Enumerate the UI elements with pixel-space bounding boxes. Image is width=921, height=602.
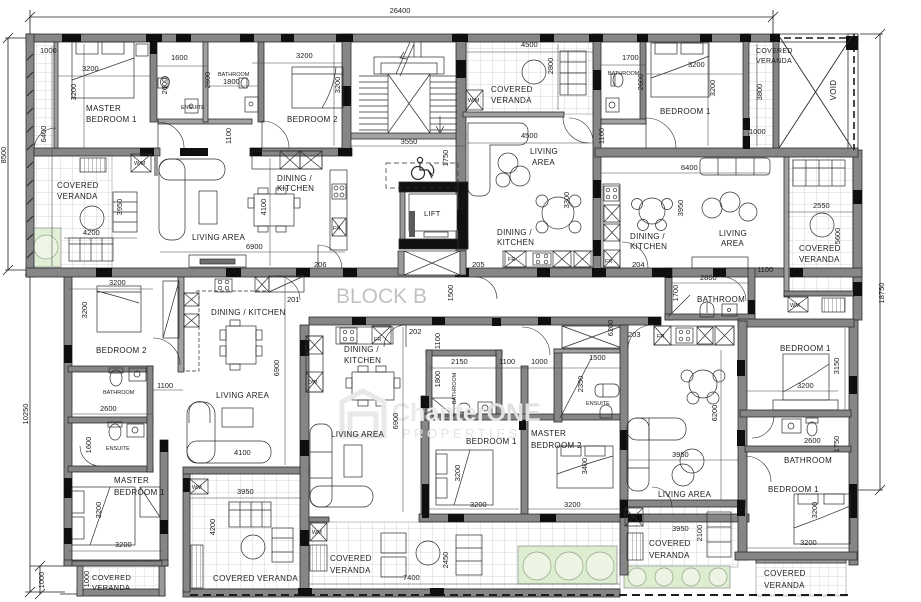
- svg-text:VERANDA: VERANDA: [649, 551, 690, 560]
- svg-text:2600: 2600: [100, 404, 117, 413]
- svg-text:3200: 3200: [333, 77, 342, 94]
- svg-text:MASTER: MASTER: [86, 104, 121, 113]
- svg-text:1800: 1800: [223, 77, 240, 86]
- svg-text:4100: 4100: [234, 448, 251, 457]
- svg-text:VERANDA: VERANDA: [756, 58, 792, 65]
- svg-text:LIFT: LIFT: [424, 209, 441, 218]
- svg-text:BEDROOM 1: BEDROOM 1: [660, 107, 711, 116]
- svg-text:1000: 1000: [82, 571, 91, 588]
- svg-text:10250: 10250: [21, 404, 30, 425]
- svg-text:3200: 3200: [109, 278, 126, 287]
- svg-text:W/M: W/M: [468, 98, 480, 104]
- svg-text:3150: 3150: [832, 358, 841, 375]
- svg-text:2800: 2800: [700, 273, 717, 282]
- svg-text:6900: 6900: [246, 242, 263, 251]
- svg-text:BATHROOM: BATHROOM: [103, 390, 135, 396]
- svg-text:VERANDA: VERANDA: [330, 566, 371, 575]
- svg-text:3550: 3550: [401, 137, 418, 146]
- svg-text:BEDROOM 2: BEDROOM 2: [287, 115, 338, 124]
- svg-text:ENSUITE: ENSUITE: [586, 401, 610, 407]
- svg-text:1000: 1000: [531, 357, 548, 366]
- svg-text:204: 204: [632, 260, 645, 269]
- svg-text:4100: 4100: [259, 199, 268, 216]
- svg-text:1600: 1600: [84, 437, 93, 454]
- svg-text:1100: 1100: [433, 333, 442, 349]
- svg-text:DINING /: DINING /: [630, 232, 665, 241]
- svg-text:1000: 1000: [37, 572, 46, 589]
- svg-text:VERANDA: VERANDA: [491, 96, 532, 105]
- svg-text:VERANDA: VERANDA: [57, 192, 98, 201]
- svg-text:2600: 2600: [804, 436, 821, 445]
- svg-text:DINING /: DINING /: [344, 345, 379, 354]
- svg-text:1100: 1100: [499, 357, 515, 366]
- svg-text:6400: 6400: [39, 126, 48, 143]
- svg-text:3300: 3300: [562, 192, 571, 209]
- svg-text:3200: 3200: [810, 502, 819, 519]
- svg-text:KITCHEN: KITCHEN: [497, 238, 534, 247]
- svg-text:1700: 1700: [671, 285, 680, 302]
- svg-text:3200: 3200: [80, 302, 89, 319]
- svg-text:COVERED: COVERED: [57, 181, 99, 190]
- svg-text:3200: 3200: [708, 80, 717, 97]
- svg-text:WM: WM: [790, 303, 800, 309]
- svg-text:FR: FR: [333, 226, 340, 232]
- svg-text:3950: 3950: [672, 450, 689, 459]
- svg-text:ENSUITE: ENSUITE: [106, 446, 130, 452]
- svg-text:LIVING AREA: LIVING AREA: [331, 430, 384, 439]
- svg-text:ENSUITE: ENSUITE: [181, 105, 205, 111]
- svg-text:BEDROOM 1: BEDROOM 1: [780, 344, 831, 353]
- svg-text:KITCHEN: KITCHEN: [277, 184, 314, 193]
- svg-text:1700: 1700: [622, 53, 639, 62]
- svg-text:1500: 1500: [589, 353, 606, 362]
- svg-text:3200: 3200: [564, 500, 581, 509]
- svg-text:3200: 3200: [69, 84, 78, 101]
- svg-text:LIVING: LIVING: [530, 147, 558, 156]
- svg-text:COVERED: COVERED: [799, 244, 841, 253]
- svg-text:6400: 6400: [681, 163, 698, 172]
- svg-text:BEDROOM 1: BEDROOM 1: [114, 488, 165, 497]
- svg-text:1100: 1100: [597, 128, 606, 144]
- svg-text:1000: 1000: [40, 46, 57, 55]
- svg-text:2600: 2600: [636, 74, 645, 91]
- svg-text:3200: 3200: [688, 60, 705, 69]
- svg-text:1100: 1100: [157, 381, 173, 390]
- svg-text:BEDROOM 1: BEDROOM 1: [86, 115, 137, 124]
- svg-text:VERANDA: VERANDA: [92, 583, 130, 592]
- svg-text:FR: FR: [508, 257, 515, 263]
- svg-text:1750: 1750: [441, 150, 450, 167]
- svg-text:3200: 3200: [94, 502, 103, 519]
- svg-text:W/M: W/M: [134, 161, 146, 167]
- svg-text:VERANDA: VERANDA: [799, 255, 840, 264]
- svg-text:2350: 2350: [576, 376, 585, 393]
- svg-text:206: 206: [314, 260, 327, 269]
- svg-text:203: 203: [628, 330, 641, 339]
- svg-text:1500: 1500: [446, 285, 455, 302]
- svg-text:BEDROOM 2: BEDROOM 2: [531, 441, 582, 450]
- svg-text:COVERED: COVERED: [649, 539, 691, 548]
- svg-text:1750: 1750: [832, 436, 841, 453]
- svg-text:1800: 1800: [433, 371, 442, 388]
- svg-text:3950: 3950: [115, 199, 124, 216]
- svg-text:3950: 3950: [676, 200, 685, 217]
- svg-text:4500: 4500: [521, 40, 538, 49]
- svg-text:6900: 6900: [272, 360, 281, 377]
- svg-text:3200: 3200: [115, 540, 132, 549]
- svg-text:3200: 3200: [800, 538, 817, 547]
- svg-text:WM: WM: [192, 485, 202, 491]
- svg-text:1600: 1600: [171, 53, 188, 62]
- svg-text:AREA: AREA: [721, 239, 744, 248]
- svg-text:18750: 18750: [877, 283, 886, 304]
- svg-text:AREA: AREA: [532, 158, 555, 167]
- svg-text:4200: 4200: [83, 228, 100, 237]
- svg-text:KITCHEN: KITCHEN: [344, 356, 381, 365]
- svg-text:2800: 2800: [546, 58, 555, 75]
- svg-text:BATHROOM: BATHROOM: [784, 456, 832, 465]
- svg-text:2100: 2100: [695, 525, 704, 542]
- svg-text:8500: 8500: [0, 147, 8, 164]
- svg-text:DINING / KITCHEN: DINING / KITCHEN: [211, 308, 286, 317]
- svg-text:BEDROOM 1: BEDROOM 1: [768, 485, 819, 494]
- svg-text:WM: WM: [627, 515, 637, 521]
- svg-text:3200: 3200: [296, 51, 313, 60]
- svg-text:3950: 3950: [237, 487, 254, 496]
- svg-text:ChanterONE: ChanterONE: [392, 399, 541, 427]
- svg-text:7400: 7400: [403, 573, 420, 582]
- svg-text:3200: 3200: [797, 381, 814, 390]
- svg-text:COVERED VERANDA: COVERED VERANDA: [213, 574, 298, 583]
- svg-text:3200: 3200: [470, 500, 487, 509]
- svg-text:1000: 1000: [749, 127, 766, 136]
- svg-text:3200: 3200: [82, 64, 99, 73]
- svg-text:DINING /: DINING /: [277, 174, 312, 183]
- svg-text:KITCHEN: KITCHEN: [630, 242, 667, 251]
- svg-text:202: 202: [409, 327, 422, 336]
- svg-text:3400: 3400: [580, 458, 589, 475]
- svg-text:BATHROOM: BATHROOM: [452, 372, 458, 404]
- svg-text:1100: 1100: [224, 128, 233, 144]
- svg-text:FR: FR: [605, 259, 612, 265]
- svg-text:BATHROOM: BATHROOM: [697, 295, 745, 304]
- svg-text:FR: FR: [374, 337, 381, 343]
- svg-text:LIVING AREA: LIVING AREA: [658, 490, 711, 499]
- svg-text:2450: 2450: [441, 552, 450, 569]
- svg-text:5600: 5600: [833, 228, 842, 245]
- svg-text:4200: 4200: [208, 519, 217, 536]
- svg-text:2150: 2150: [451, 357, 468, 366]
- svg-text:6200: 6200: [606, 320, 615, 337]
- svg-text:LIVING AREA: LIVING AREA: [216, 391, 269, 400]
- svg-text:BEDROOM 2: BEDROOM 2: [96, 346, 147, 355]
- svg-text:VERANDA: VERANDA: [764, 581, 805, 590]
- svg-text:WM: WM: [312, 530, 322, 536]
- svg-text:BLOCK B: BLOCK B: [336, 285, 427, 308]
- svg-text:6900: 6900: [391, 413, 400, 430]
- svg-text:6200: 6200: [710, 405, 719, 422]
- svg-text:3950: 3950: [672, 524, 689, 533]
- svg-text:COVERED: COVERED: [764, 569, 806, 578]
- svg-text:MASTER: MASTER: [531, 429, 566, 438]
- svg-text:LIVING: LIVING: [719, 229, 747, 238]
- svg-text:BEDROOM 1: BEDROOM 1: [466, 437, 517, 446]
- svg-text:FR: FR: [657, 334, 664, 340]
- svg-text:205: 205: [472, 260, 485, 269]
- svg-text:3800: 3800: [755, 84, 764, 101]
- svg-text:2600: 2600: [160, 78, 169, 95]
- svg-text:26400: 26400: [390, 6, 411, 15]
- svg-text:4500: 4500: [521, 131, 538, 140]
- svg-text:COVERED: COVERED: [756, 48, 793, 55]
- svg-text:LIVING AREA: LIVING AREA: [192, 233, 245, 242]
- svg-text:201: 201: [287, 295, 300, 304]
- svg-text:COVERED: COVERED: [330, 554, 372, 563]
- svg-text:VOID: VOID: [829, 80, 838, 101]
- svg-text:DW: DW: [308, 380, 318, 386]
- svg-text:COVERED: COVERED: [491, 85, 533, 94]
- svg-text:1100: 1100: [757, 265, 773, 274]
- svg-text:DINING /: DINING /: [497, 228, 532, 237]
- svg-text:COVERED: COVERED: [92, 573, 131, 582]
- svg-text:MASTER: MASTER: [114, 476, 149, 485]
- svg-text:3200: 3200: [453, 465, 462, 482]
- svg-text:2550: 2550: [813, 201, 830, 210]
